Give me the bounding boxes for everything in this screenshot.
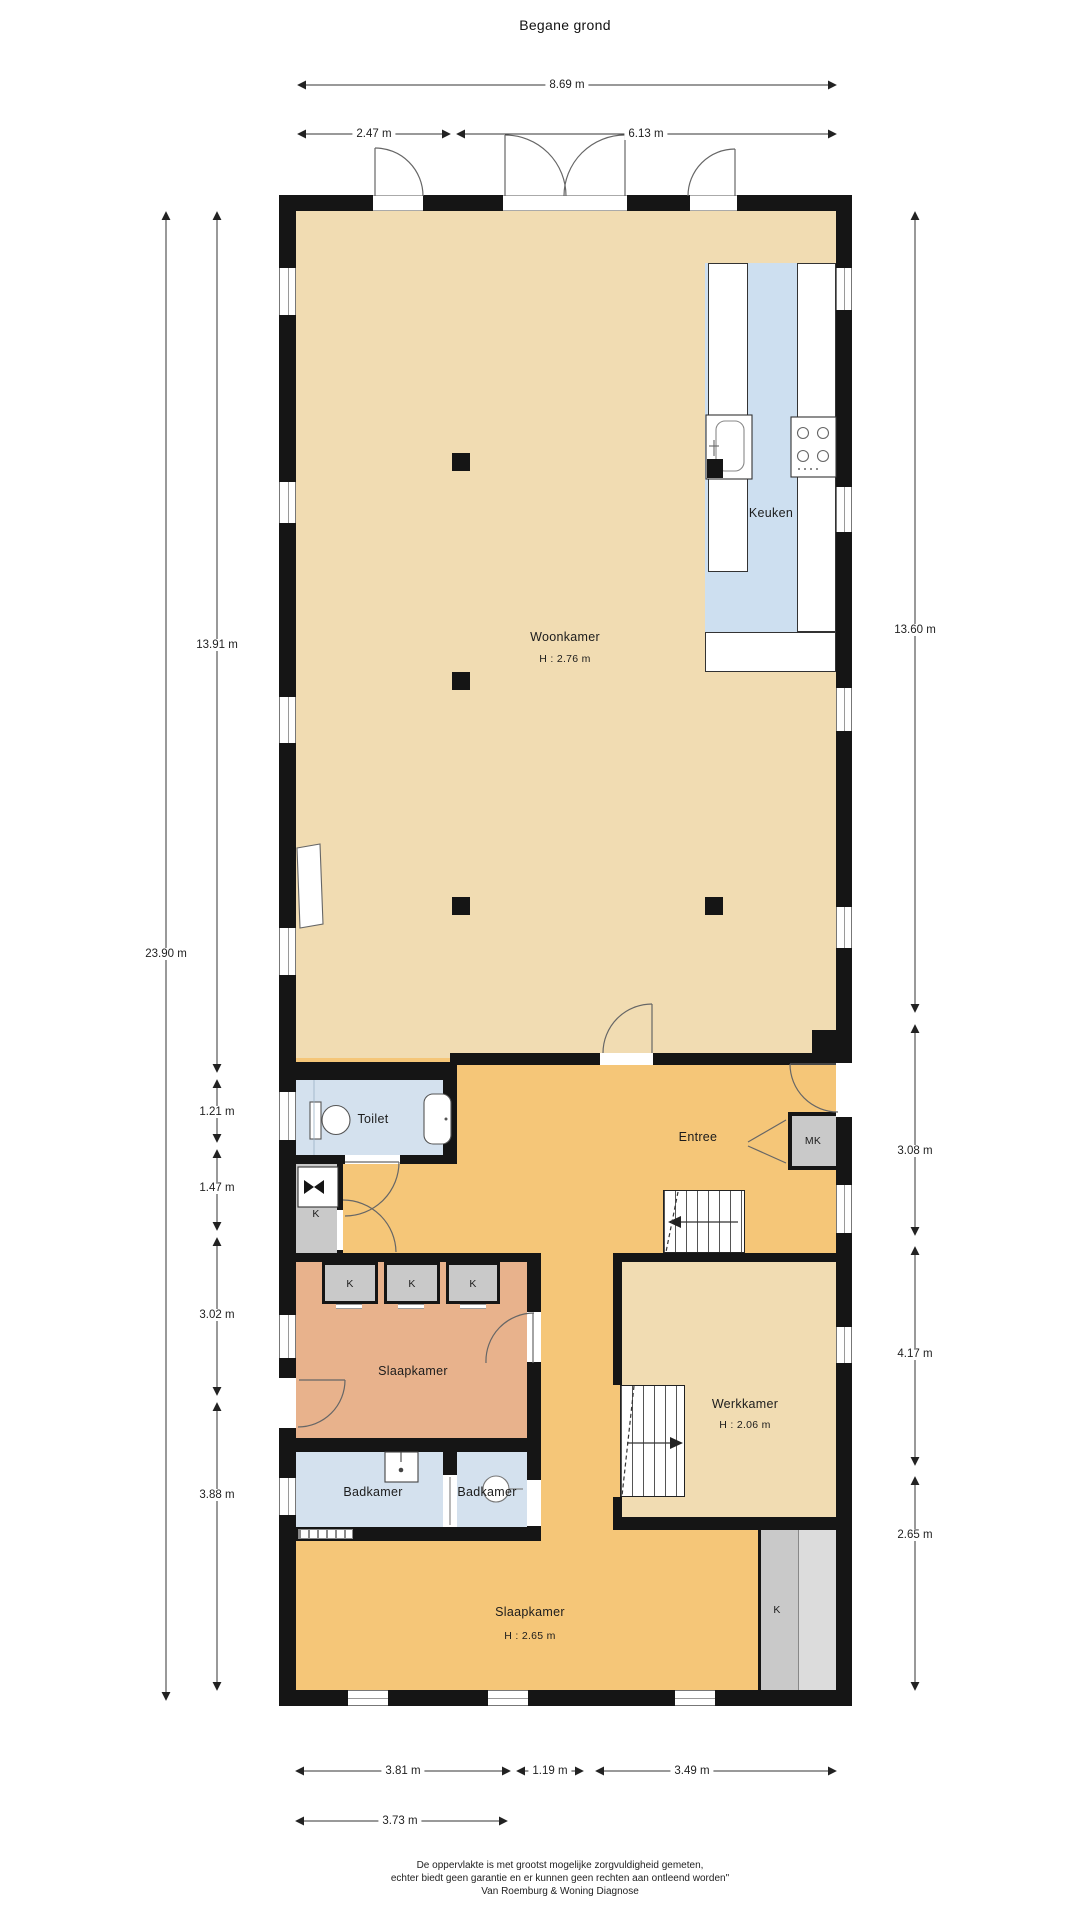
toilet-tank [310, 1102, 321, 1139]
stove-block [791, 417, 836, 477]
dimension-lines [166, 85, 915, 1821]
page-title: Begane grond [519, 17, 611, 33]
room-height-slaapkamer-2: H : 2.65 m [504, 1630, 555, 1642]
dim-left-total: 23.90 m [141, 948, 191, 960]
dim-right-1: 13.60 m [890, 624, 940, 636]
footer-company-name: Van Roemburg & Woning Diagnose [481, 1886, 639, 1897]
closet-label-k-bottom: K [773, 1604, 780, 1616]
dim-top-total: 8.69 m [545, 79, 588, 91]
closet-label-k-boiler: K [312, 1208, 319, 1220]
dim-left-3: 3.02 m [195, 1309, 238, 1321]
footer-disclaimer-line-2: echter biedt geen garantie en er kunnen … [391, 1873, 729, 1884]
open-door-leaf [297, 844, 323, 928]
dim-left-inner: 13.91 m [192, 639, 242, 651]
dim-right-4: 2.65 m [893, 1529, 936, 1541]
fixtures [297, 415, 836, 1502]
room-height-werkkamer: H : 2.06 m [719, 1419, 770, 1431]
room-label-entree: Entree [679, 1130, 718, 1144]
room-label-werkkamer: Werkkamer [712, 1397, 778, 1411]
dim-bottom-1: 3.81 m [381, 1765, 424, 1777]
dim-left-2: 1.47 m [195, 1182, 238, 1194]
dim-right-3: 4.17 m [893, 1348, 936, 1360]
closet-label-k1: K [346, 1278, 353, 1290]
room-label-slaapkamer-1: Slaapkamer [378, 1364, 448, 1378]
room-height-woonkamer: H : 2.76 m [539, 653, 590, 665]
dim-bottom-4: 3.73 m [378, 1815, 421, 1827]
closet-label-k3: K [469, 1278, 476, 1290]
toilet-bowl [322, 1106, 350, 1135]
dim-right-2: 3.08 m [893, 1145, 936, 1157]
room-label-keuken: Keuken [749, 506, 793, 520]
room-label-badkamer-1: Badkamer [343, 1485, 402, 1499]
stair-details [622, 1192, 738, 1496]
door-arcs [298, 135, 838, 1525]
dim-bottom-3: 3.49 m [670, 1765, 713, 1777]
room-label-slaapkamer-2: Slaapkamer [495, 1605, 565, 1619]
dim-left-4: 3.88 m [195, 1489, 238, 1501]
footer-disclaimer-line-1: De oppervlakte is met grootst mogelijke … [417, 1860, 704, 1871]
floor-plan: Begane grond Woonkamer H : 2.76 m Keuken… [0, 0, 1080, 1920]
room-label-woonkamer: Woonkamer [530, 630, 600, 644]
room-label-badkamer-2: Badkamer [457, 1485, 516, 1499]
closet-label-k2: K [408, 1278, 415, 1290]
dim-bottom-2: 1.19 m [528, 1765, 571, 1777]
dim-top-left: 2.47 m [352, 128, 395, 140]
closet-label-mk: MK [805, 1135, 821, 1147]
room-label-toilet: Toilet [358, 1112, 389, 1126]
dim-left-1: 1.21 m [195, 1106, 238, 1118]
dim-top-right: 6.13 m [624, 128, 667, 140]
